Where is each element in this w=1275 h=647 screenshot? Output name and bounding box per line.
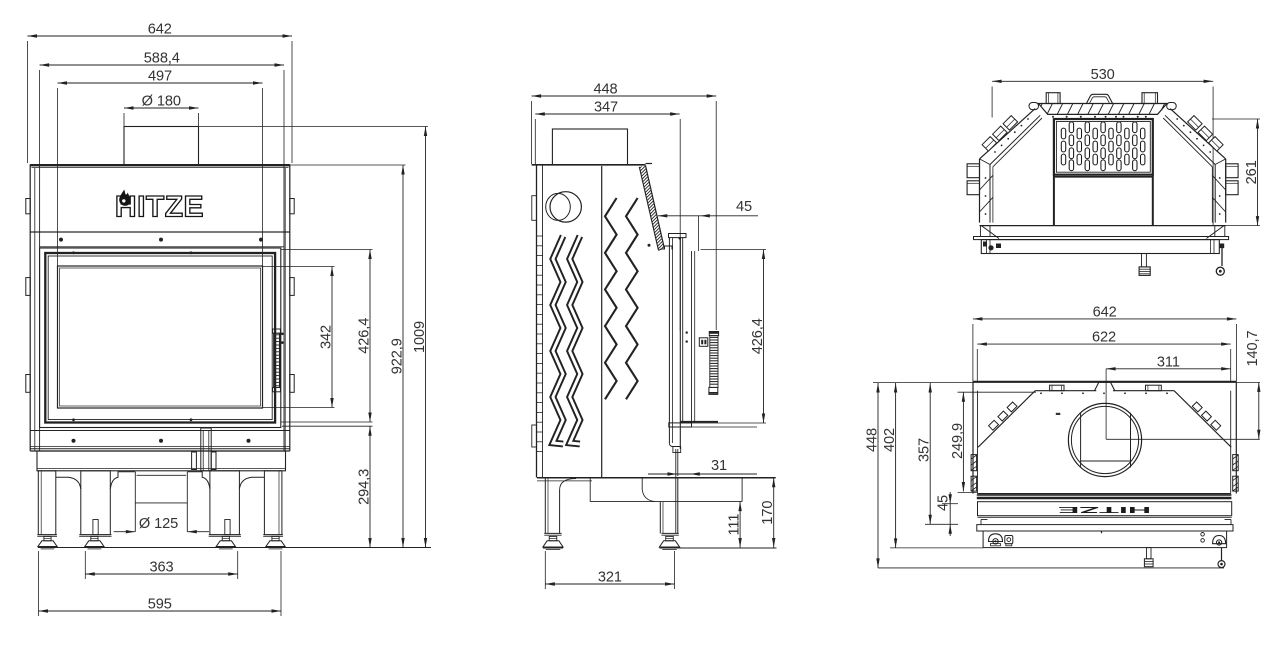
svg-text:642: 642 bbox=[1093, 305, 1117, 321]
svg-text:642: 642 bbox=[148, 22, 172, 38]
svg-text:347: 347 bbox=[594, 100, 618, 116]
svg-text:311: 311 bbox=[1157, 354, 1180, 370]
svg-text:363: 363 bbox=[149, 560, 173, 576]
svg-text:261: 261 bbox=[1244, 160, 1260, 184]
svg-text:294,3: 294,3 bbox=[356, 469, 372, 505]
svg-text:530: 530 bbox=[1091, 67, 1115, 83]
svg-text:342: 342 bbox=[318, 325, 334, 349]
svg-text:170: 170 bbox=[760, 501, 776, 525]
svg-text:321: 321 bbox=[598, 570, 622, 586]
svg-text:426,4: 426,4 bbox=[356, 318, 372, 354]
svg-text:31: 31 bbox=[711, 458, 727, 474]
svg-text:595: 595 bbox=[148, 597, 172, 613]
svg-text:45: 45 bbox=[736, 199, 752, 215]
svg-text:Ø 180: Ø 180 bbox=[142, 94, 181, 110]
svg-text:HITZE: HITZE bbox=[1058, 505, 1151, 514]
svg-text:111: 111 bbox=[727, 514, 743, 536]
svg-text:249,9: 249,9 bbox=[950, 423, 966, 459]
svg-text:497: 497 bbox=[148, 69, 172, 85]
svg-text:357: 357 bbox=[917, 438, 933, 462]
svg-text:448: 448 bbox=[593, 82, 617, 98]
svg-text:448: 448 bbox=[864, 428, 880, 452]
svg-text:922,9: 922,9 bbox=[389, 338, 405, 374]
svg-text:45: 45 bbox=[935, 495, 951, 511]
svg-text:1009: 1009 bbox=[412, 321, 428, 353]
svg-text:402: 402 bbox=[882, 428, 898, 452]
svg-text:588,4: 588,4 bbox=[144, 51, 180, 67]
svg-text:140,7: 140,7 bbox=[1245, 330, 1261, 366]
svg-text:622: 622 bbox=[1092, 330, 1116, 346]
svg-text:426,4: 426,4 bbox=[750, 318, 766, 354]
svg-text:Ø 125: Ø 125 bbox=[139, 516, 178, 532]
